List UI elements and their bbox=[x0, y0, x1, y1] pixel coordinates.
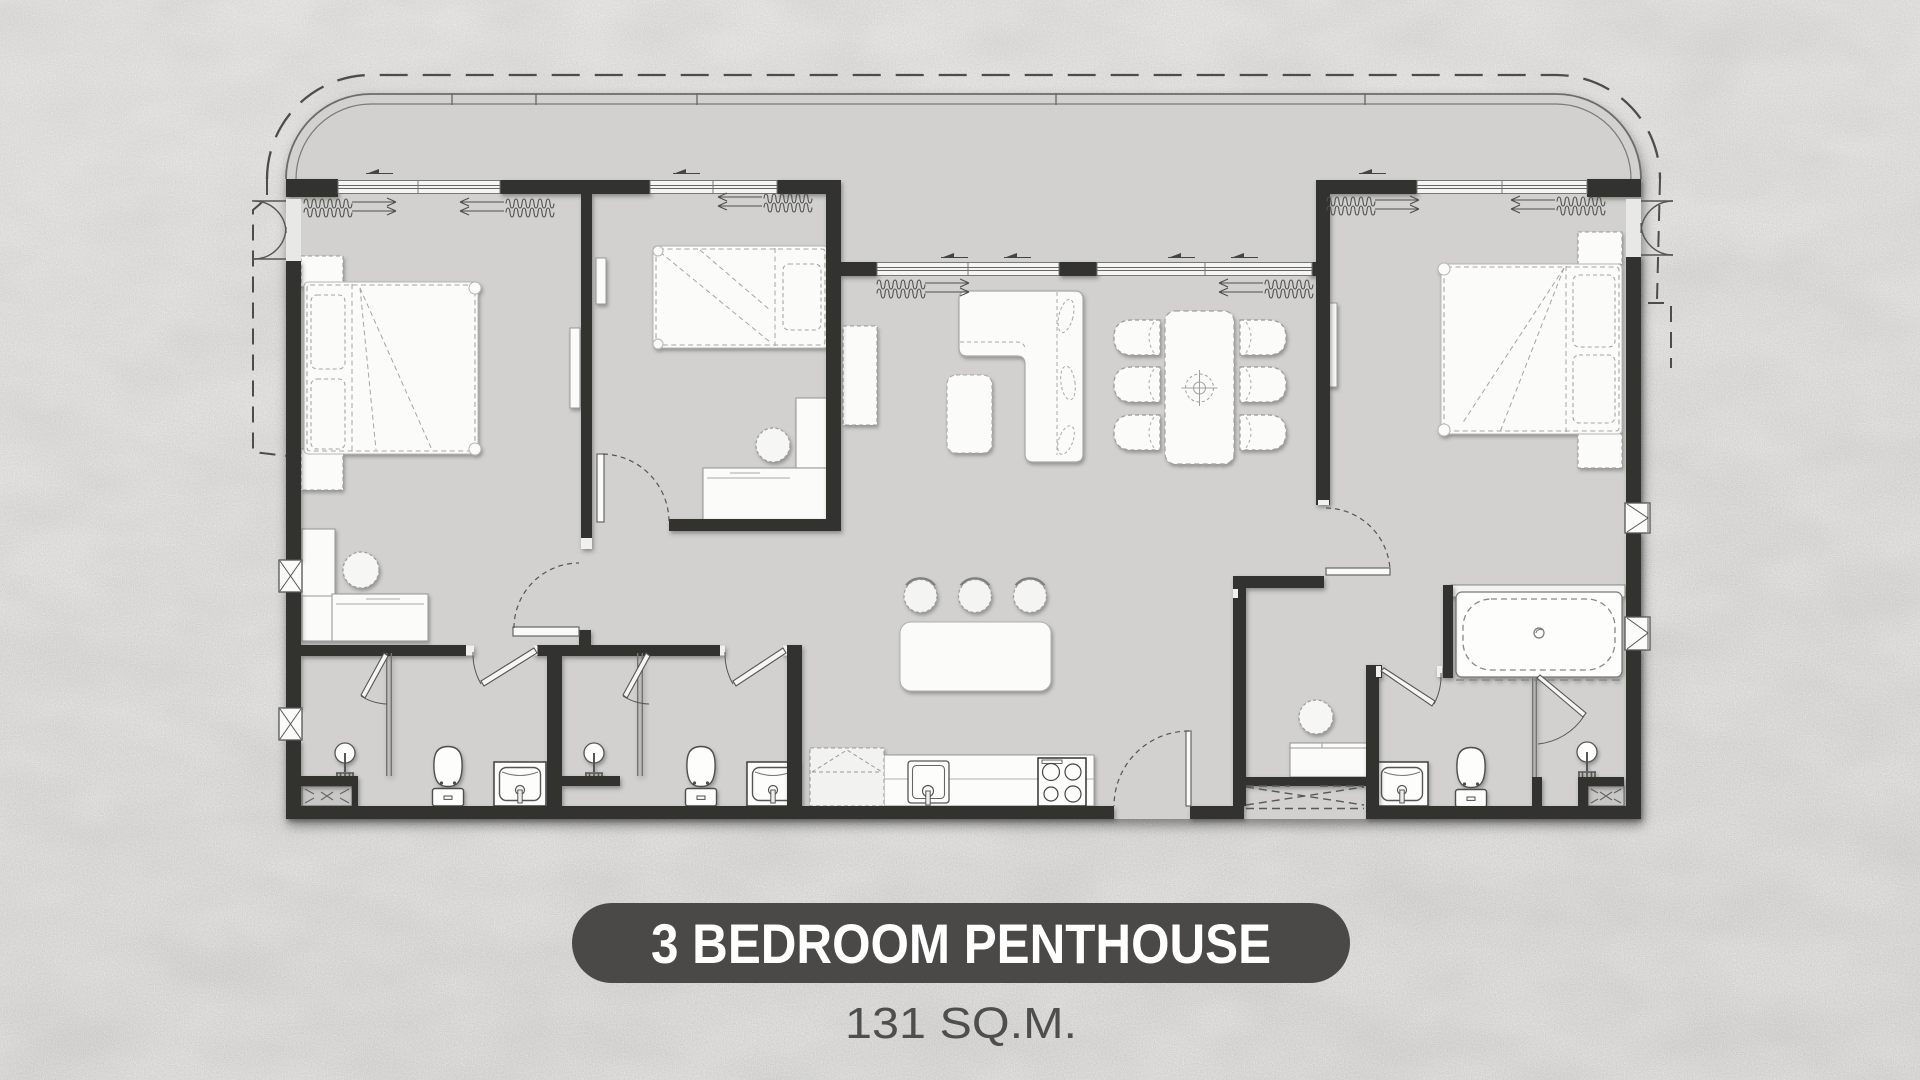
svg-text:131 SQ.M.: 131 SQ.M. bbox=[845, 999, 1077, 1048]
svg-text:3 BEDROOM PENTHOUSE: 3 BEDROOM PENTHOUSE bbox=[651, 912, 1271, 975]
